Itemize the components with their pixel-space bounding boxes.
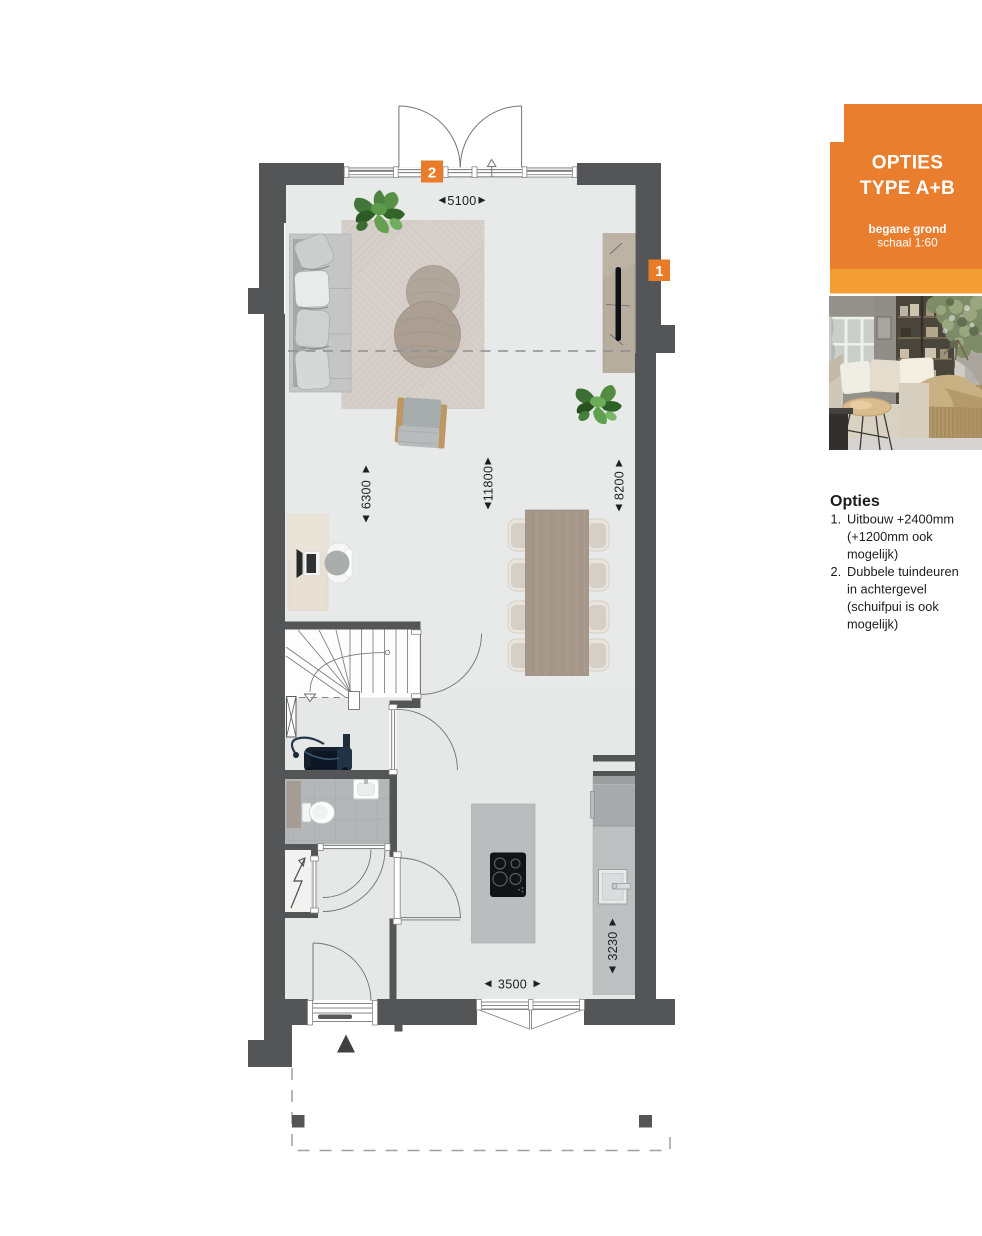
svg-text:mogelijk): mogelijk) [847,547,898,562]
svg-text:8200: 8200 [613,471,627,500]
svg-text:Dubbele tuindeuren: Dubbele tuindeuren [847,564,959,579]
svg-text:3500: 3500 [498,977,527,991]
svg-text:11800: 11800 [482,466,496,502]
svg-text:3230: 3230 [606,931,620,960]
svg-text:(schuifpui is ook: (schuifpui is ook [847,599,939,614]
svg-text:mogelijk): mogelijk) [847,617,898,632]
svg-text:begane grond: begane grond [869,222,947,236]
svg-text:schaal 1:60: schaal 1:60 [877,236,938,250]
svg-text:2.: 2. [831,564,842,579]
svg-text:6300: 6300 [360,480,374,509]
svg-text:TYPE A+B: TYPE A+B [860,178,955,199]
svg-text:1.: 1. [831,512,842,527]
svg-text:Opties: Opties [830,493,880,510]
svg-text:in achtergevel: in achtergevel [847,582,927,597]
svg-text:OPTIES: OPTIES [872,153,943,174]
svg-text:2: 2 [428,164,436,181]
svg-text:Uitbouw +2400mm: Uitbouw +2400mm [847,512,954,527]
svg-text:(+1200mm ook: (+1200mm ook [847,529,933,544]
svg-text:1: 1 [655,263,663,280]
svg-text:5100: 5100 [447,194,476,208]
